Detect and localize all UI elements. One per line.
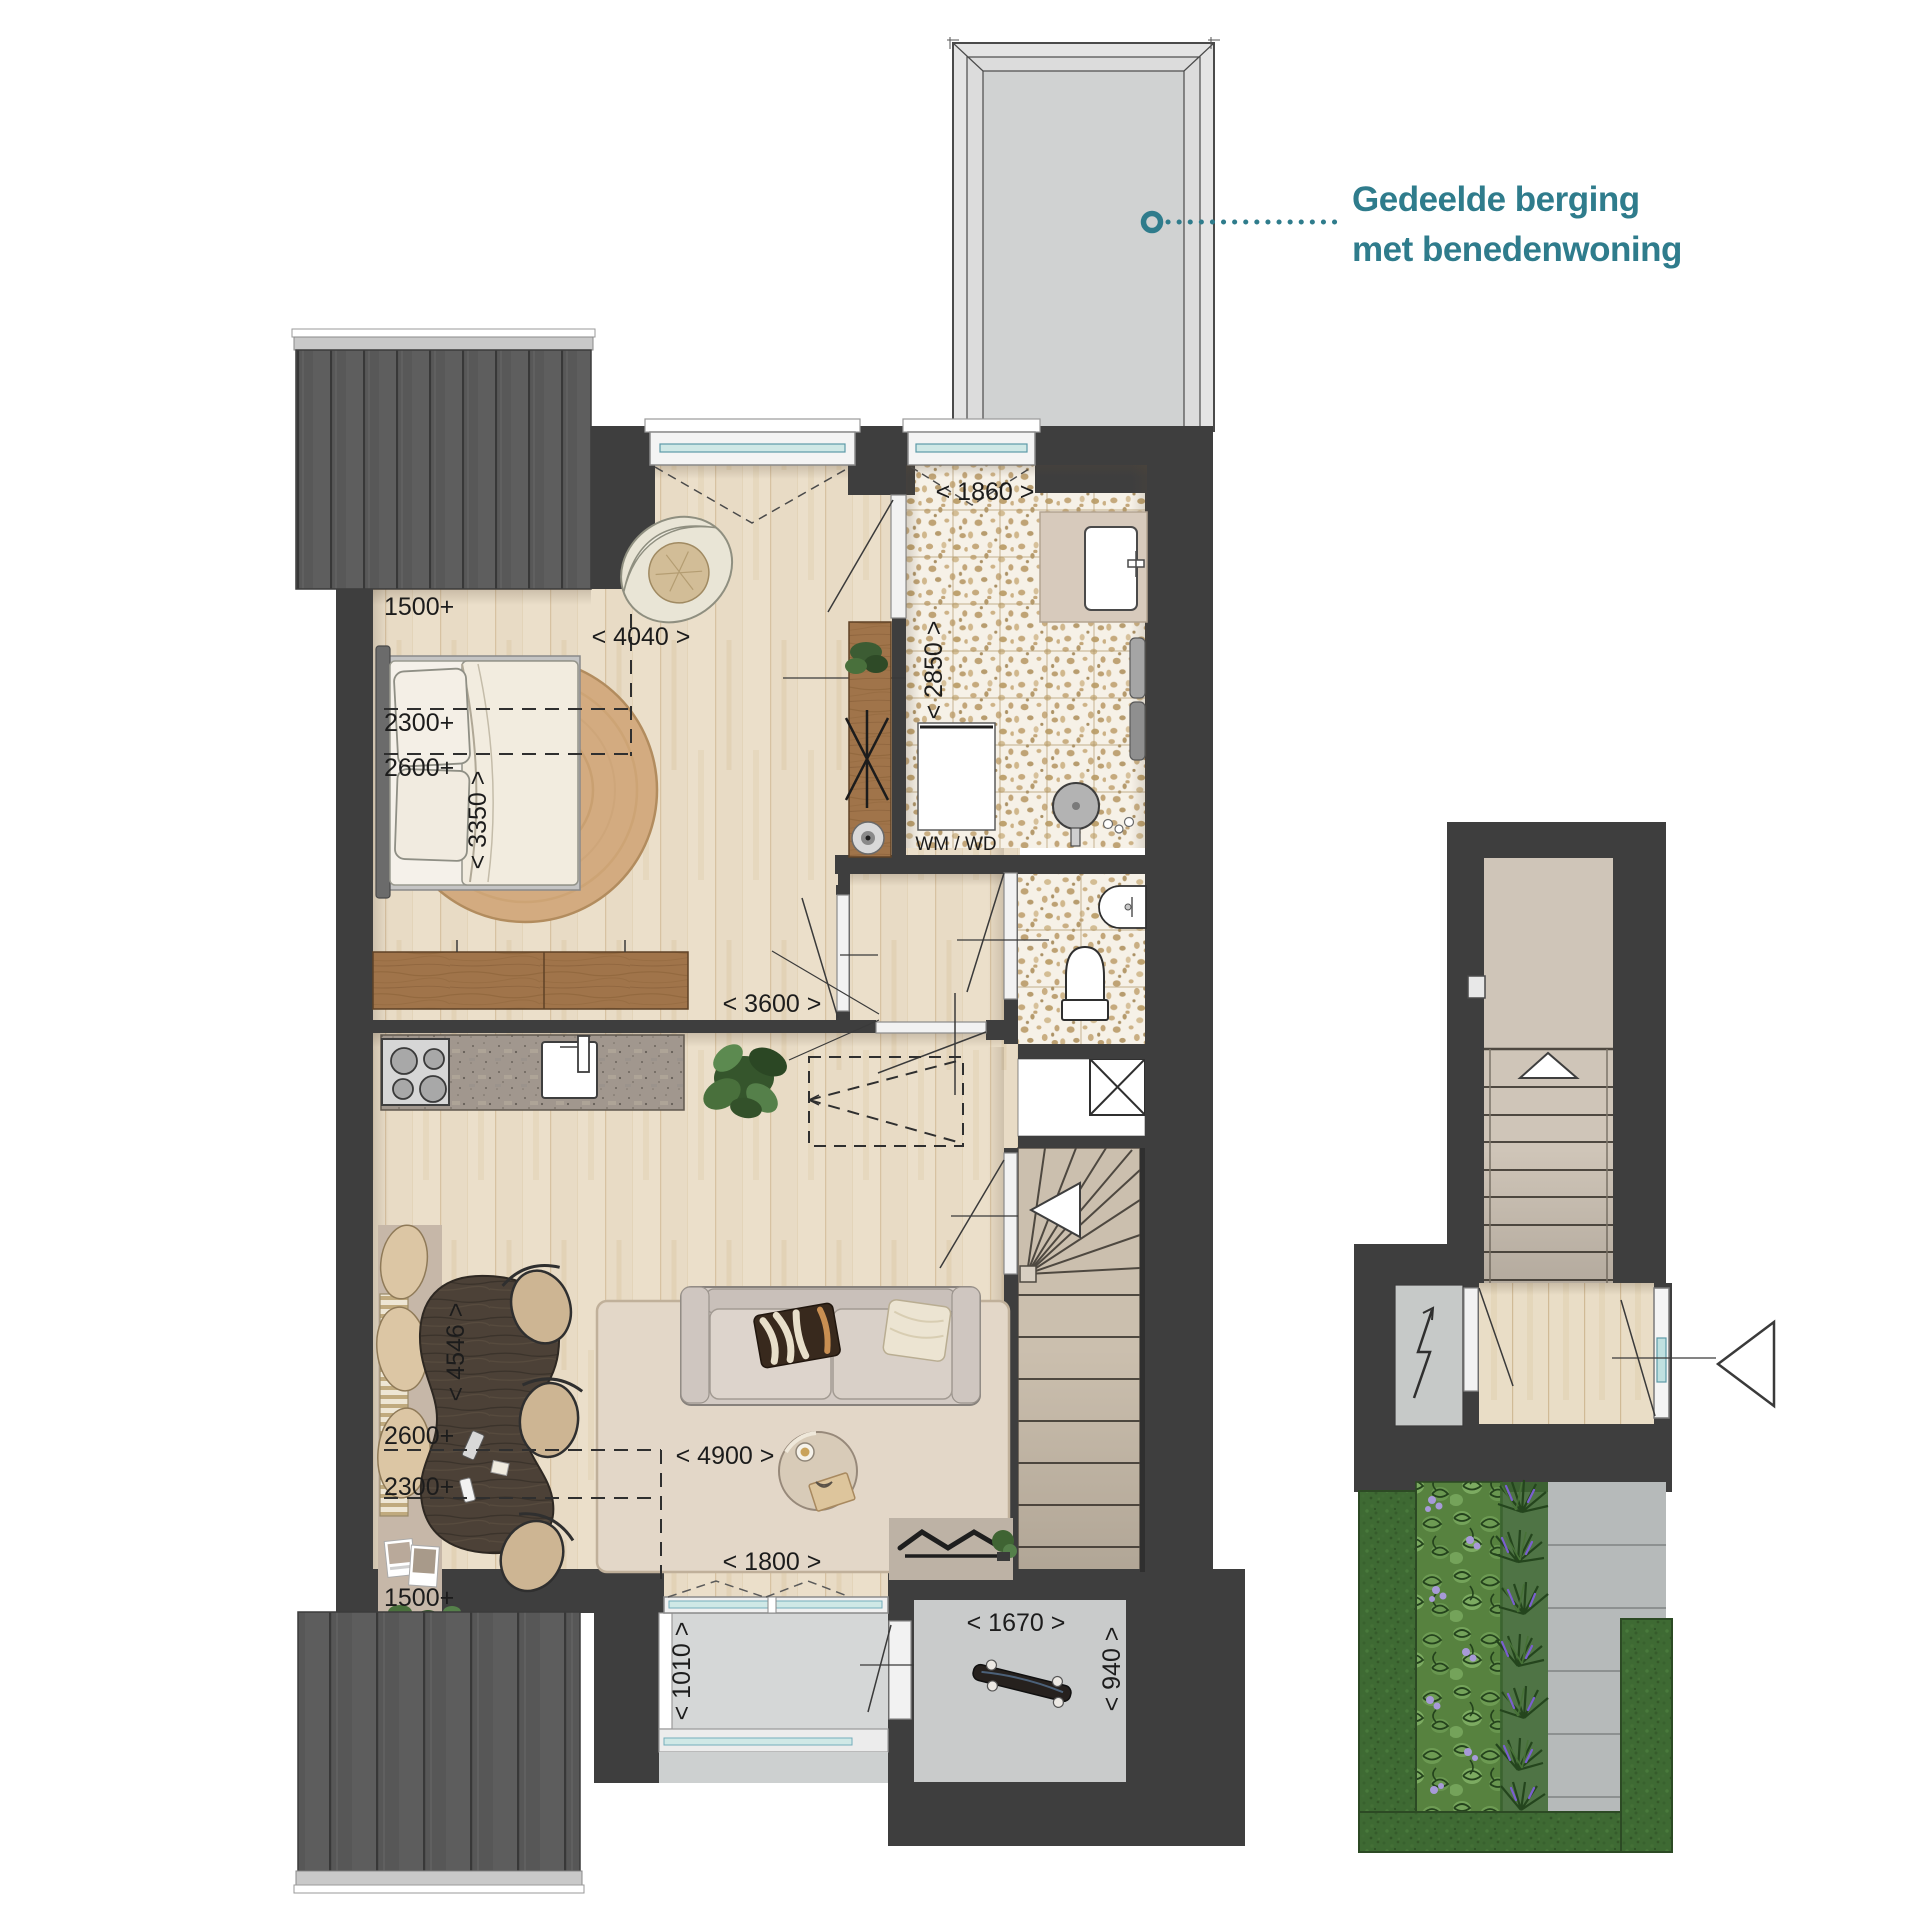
svg-text:< 1670 >: < 1670 > [967, 1609, 1066, 1637]
svg-text:2600+: 2600+ [384, 754, 454, 782]
svg-text:1500+: 1500+ [384, 593, 454, 621]
svg-text:WM / WD: WM / WD [915, 834, 996, 855]
svg-text:< 940 >: < 940 > [1098, 1627, 1126, 1712]
svg-text:< 4546 >: < 4546 > [442, 1303, 470, 1402]
svg-text:< 2850 >: < 2850 > [920, 621, 948, 720]
svg-text:< 3600 >: < 3600 > [723, 990, 822, 1018]
svg-text:Gedeelde berging: Gedeelde berging [1352, 180, 1640, 219]
svg-text:< 4040 >: < 4040 > [592, 623, 691, 651]
svg-text:1500+: 1500+ [384, 1584, 454, 1612]
svg-text:2300+: 2300+ [384, 1473, 454, 1501]
svg-text:met benedenwoning: met benedenwoning [1352, 230, 1682, 269]
svg-text:< 1860 >: < 1860 > [936, 478, 1035, 506]
svg-text:2300+: 2300+ [384, 709, 454, 737]
svg-text:2600+: 2600+ [384, 1422, 454, 1450]
svg-text:< 1800 >: < 1800 > [723, 1548, 822, 1576]
svg-text:< 4900 >: < 4900 > [676, 1442, 775, 1470]
svg-text:< 3350 >: < 3350 > [464, 771, 492, 870]
svg-text:< 1010 >: < 1010 > [668, 1622, 696, 1721]
